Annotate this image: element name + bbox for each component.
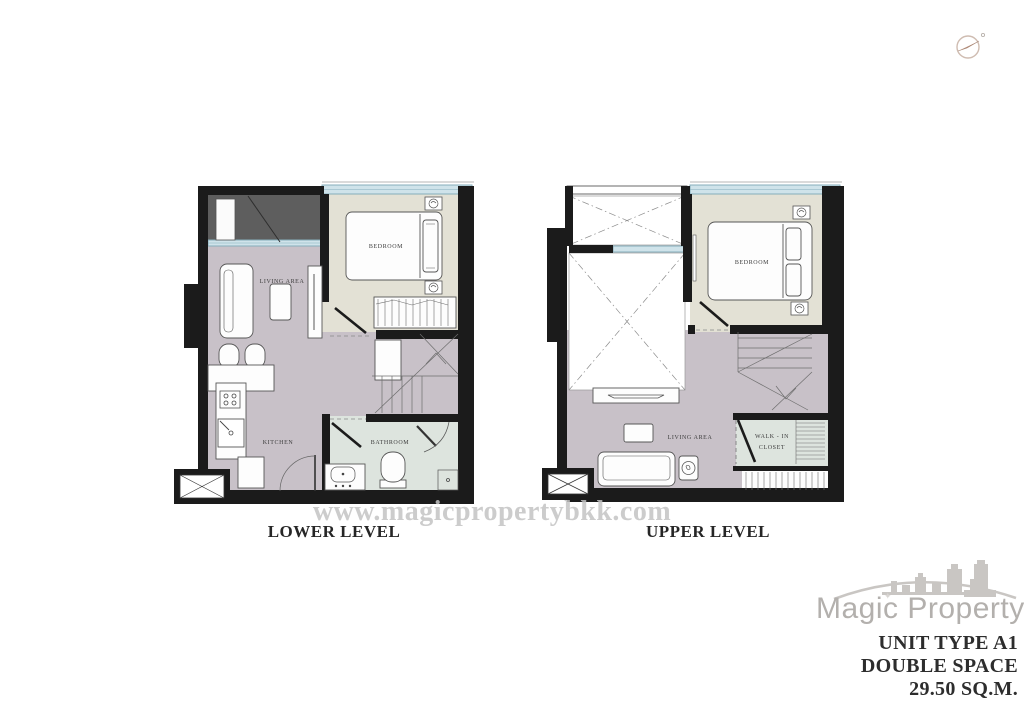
bedroom-label: BEDROOM bbox=[735, 260, 769, 266]
unit-area: 29.50 SQ.M. bbox=[816, 678, 1018, 701]
bedroom-label: BEDROOM bbox=[369, 244, 403, 250]
kitchen-counter bbox=[216, 383, 246, 459]
lower-level-plan: BEDROOM LIVING AREA bbox=[170, 180, 480, 514]
void-window bbox=[613, 246, 685, 252]
unit-type: UNIT TYPE A1 bbox=[816, 632, 1018, 655]
coffee-table bbox=[624, 424, 653, 442]
ac-unit-icon bbox=[425, 197, 442, 210]
closet-label-line1: WALK - IN bbox=[755, 434, 789, 440]
compass-icon bbox=[940, 22, 1000, 70]
double-space-void bbox=[567, 186, 687, 390]
sofa bbox=[598, 452, 675, 486]
fan-icon bbox=[679, 456, 698, 480]
sparkle-icon: ✦ bbox=[884, 591, 892, 602]
ac-unit-icon bbox=[791, 302, 808, 315]
shaft bbox=[174, 469, 230, 504]
wardrobe bbox=[374, 297, 456, 328]
ac-unit-icon bbox=[425, 281, 442, 294]
sofa bbox=[220, 264, 253, 338]
living-area-label: LIVING AREA bbox=[668, 435, 713, 441]
vanity bbox=[325, 464, 365, 490]
floor-plan-page: BEDROOM LIVING AREA bbox=[0, 0, 1024, 724]
wall-tv bbox=[693, 235, 696, 281]
living-area-label: LIVING AREA bbox=[260, 279, 305, 285]
closet-label-line2: CLOSET bbox=[759, 445, 785, 451]
brand-name: Magic Property bbox=[816, 592, 1018, 626]
unit-info: UNIT TYPE A1 DOUBLE SPACE 29.50 SQ.M. bbox=[816, 632, 1018, 701]
ac-unit-icon bbox=[793, 206, 810, 219]
fridge bbox=[238, 457, 264, 488]
tv-console bbox=[593, 388, 679, 403]
upper-level-plan: BEDROOM LIVING ARE bbox=[540, 180, 850, 514]
kitchen-label: KITCHEN bbox=[263, 440, 294, 446]
coffee-table bbox=[270, 284, 291, 320]
ac-condenser bbox=[216, 199, 235, 240]
toilet bbox=[380, 452, 406, 488]
watermark: www.magicpropertybkk.com bbox=[262, 496, 722, 528]
unit-space: DOUBLE SPACE bbox=[816, 655, 1018, 678]
tv-console bbox=[308, 266, 322, 338]
bathroom-label: BATHROOM bbox=[371, 440, 410, 446]
